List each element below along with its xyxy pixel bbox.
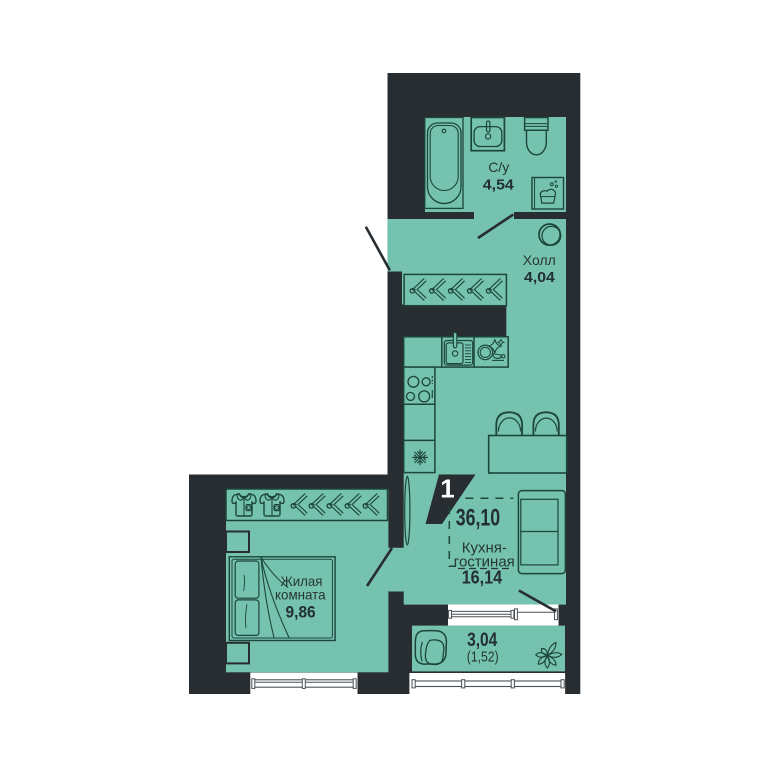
svg-text:36,10: 36,10 <box>456 505 501 532</box>
svg-text:3,04: 3,04 <box>467 630 498 651</box>
svg-text:9,86: 9,86 <box>286 602 316 621</box>
svg-text:1: 1 <box>440 474 454 504</box>
svg-text:4,54: 4,54 <box>483 178 514 194</box>
svg-text:комната: комната <box>275 587 326 603</box>
svg-text:Холл: Холл <box>523 252 556 268</box>
svg-text:16,14: 16,14 <box>462 567 502 587</box>
svg-text:С/у: С/у <box>488 159 509 175</box>
svg-text:(1,52): (1,52) <box>467 650 499 666</box>
svg-text:4,04: 4,04 <box>524 270 555 286</box>
